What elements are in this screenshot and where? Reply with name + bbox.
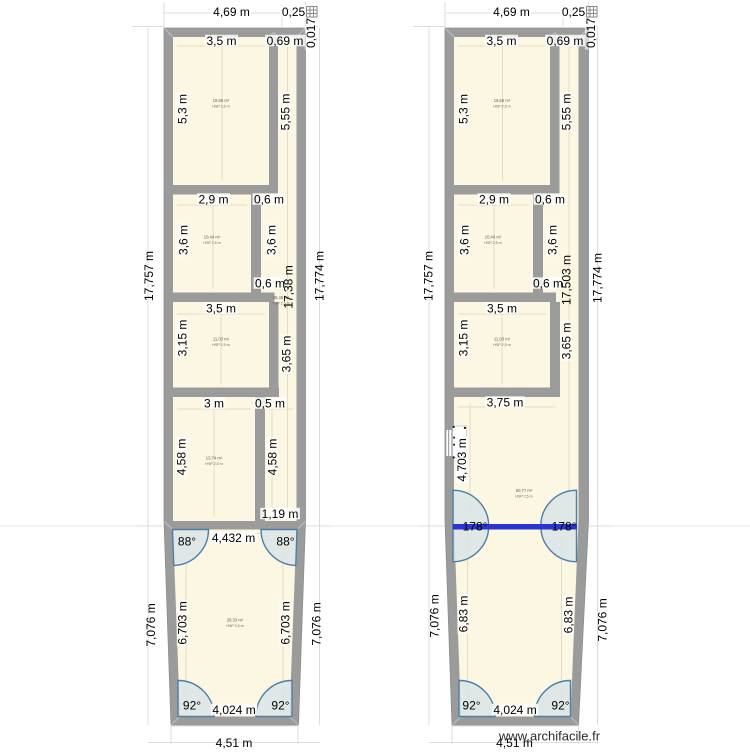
- svg-text:88°: 88°: [178, 534, 196, 548]
- svg-text:3,15 m: 3,15 m: [456, 320, 470, 357]
- svg-text:www.archifacile.fr: www.archifacile.fr: [498, 729, 601, 744]
- svg-text:0,25: 0,25: [562, 5, 586, 19]
- svg-text:HSP 2,5 m: HSP 2,5 m: [212, 343, 229, 347]
- svg-text:3,6 m: 3,6 m: [457, 225, 471, 255]
- svg-text:18,55 m²: 18,55 m²: [213, 98, 230, 103]
- svg-text:0,69 m: 0,69 m: [547, 34, 584, 48]
- svg-text:17,774 m: 17,774 m: [312, 251, 326, 301]
- svg-text:92°: 92°: [183, 698, 201, 712]
- svg-text:13,74 m²: 13,74 m²: [206, 456, 223, 461]
- svg-text:6,83 m: 6,83 m: [561, 597, 575, 634]
- svg-text:11,03 m²: 11,03 m²: [213, 337, 230, 342]
- svg-text:28,33 m²: 28,33 m²: [227, 618, 244, 623]
- svg-text:3,65 m: 3,65 m: [279, 336, 293, 373]
- svg-text:3,5 m: 3,5 m: [487, 301, 517, 315]
- svg-text:4,58 m: 4,58 m: [265, 439, 279, 476]
- svg-text:92°: 92°: [271, 698, 289, 712]
- svg-text:178°: 178°: [552, 519, 577, 533]
- svg-text:6,83 m: 6,83 m: [456, 596, 470, 633]
- svg-text:7,076 m: 7,076 m: [595, 598, 609, 641]
- svg-text:HSP 2,5 m: HSP 2,5 m: [205, 462, 222, 466]
- svg-text:3,5 m: 3,5 m: [486, 34, 516, 48]
- svg-text:0,017: 0,017: [304, 18, 318, 48]
- svg-text:7,076 m: 7,076 m: [144, 603, 158, 646]
- svg-text:17,38 m: 17,38 m: [281, 265, 295, 308]
- svg-text:17,757 m: 17,757 m: [421, 251, 435, 301]
- svg-text:60,77 m²: 60,77 m²: [516, 488, 533, 493]
- svg-text:18,55 m²: 18,55 m²: [494, 98, 511, 103]
- svg-text:2,9 m: 2,9 m: [198, 192, 228, 206]
- svg-text:0,6 m: 0,6 m: [254, 192, 284, 206]
- svg-text:0,017: 0,017: [584, 18, 598, 48]
- svg-text:HSP 2,5 m: HSP 2,5 m: [493, 343, 510, 347]
- svg-text:3,6 m: 3,6 m: [545, 225, 559, 255]
- svg-text:HSP 2,5 m: HSP 2,5 m: [493, 104, 510, 108]
- svg-text:10,44 m²: 10,44 m²: [485, 235, 502, 240]
- svg-text:3,75 m: 3,75 m: [487, 395, 524, 409]
- svg-text:5,55 m: 5,55 m: [559, 94, 573, 131]
- svg-text:7,076 m: 7,076 m: [427, 594, 441, 637]
- svg-text:3,6 m: 3,6 m: [264, 225, 278, 255]
- svg-text:5,55 m: 5,55 m: [278, 94, 292, 131]
- svg-text:4,58 m: 4,58 m: [174, 439, 188, 476]
- svg-text:5,3 m: 5,3 m: [175, 94, 189, 124]
- svg-text:7,076 m: 7,076 m: [309, 602, 323, 645]
- svg-text:0,69 m: 0,69 m: [267, 34, 304, 48]
- svg-text:17,774 m: 17,774 m: [590, 253, 604, 303]
- svg-text:0,5 m: 0,5 m: [255, 396, 285, 410]
- svg-text:6,703 m: 6,703 m: [176, 601, 190, 644]
- svg-text:6,703 m: 6,703 m: [278, 601, 292, 644]
- svg-text:3,5 m: 3,5 m: [206, 34, 236, 48]
- svg-text:0,25: 0,25: [282, 5, 306, 19]
- svg-text:HSP 2,5 m: HSP 2,5 m: [203, 241, 220, 245]
- svg-text:HSP 2,5 m: HSP 2,5 m: [484, 241, 501, 245]
- svg-text:4,024 m: 4,024 m: [212, 703, 255, 717]
- svg-text:3,65 m: 3,65 m: [559, 323, 573, 360]
- svg-text:178°: 178°: [463, 519, 488, 533]
- svg-text:17,503 m: 17,503 m: [559, 255, 573, 305]
- svg-text:5,3 m: 5,3 m: [456, 94, 470, 124]
- svg-text:4,024 m: 4,024 m: [493, 703, 536, 717]
- svg-text:10,44 m²: 10,44 m²: [204, 235, 221, 240]
- svg-text:17,757 m: 17,757 m: [142, 251, 156, 301]
- svg-text:1,19 m: 1,19 m: [262, 507, 299, 521]
- svg-text:HSP 2,5 m: HSP 2,5 m: [212, 104, 229, 108]
- svg-text:3,6 m: 3,6 m: [176, 225, 190, 255]
- svg-text:4,703 m: 4,703 m: [455, 438, 469, 481]
- svg-text:4,69 m: 4,69 m: [213, 5, 250, 19]
- svg-text:HSP 2,5 m: HSP 2,5 m: [226, 624, 243, 628]
- svg-text:4,69 m: 4,69 m: [493, 5, 530, 19]
- svg-text:0,6 m: 0,6 m: [535, 192, 565, 206]
- svg-text:4,51 m: 4,51 m: [216, 736, 253, 750]
- svg-text:HSP 2,5 m: HSP 2,5 m: [515, 494, 532, 498]
- svg-text:88°: 88°: [276, 534, 294, 548]
- svg-text:3,15 m: 3,15 m: [175, 320, 189, 357]
- svg-text:4,432 m: 4,432 m: [212, 531, 255, 545]
- svg-text:2,9 m: 2,9 m: [479, 192, 509, 206]
- svg-text:11,03 m²: 11,03 m²: [494, 337, 511, 342]
- svg-text:92°: 92°: [551, 698, 569, 712]
- svg-text:92°: 92°: [462, 698, 480, 712]
- svg-text:3 m: 3 m: [204, 396, 224, 410]
- svg-text:3,5 m: 3,5 m: [206, 301, 236, 315]
